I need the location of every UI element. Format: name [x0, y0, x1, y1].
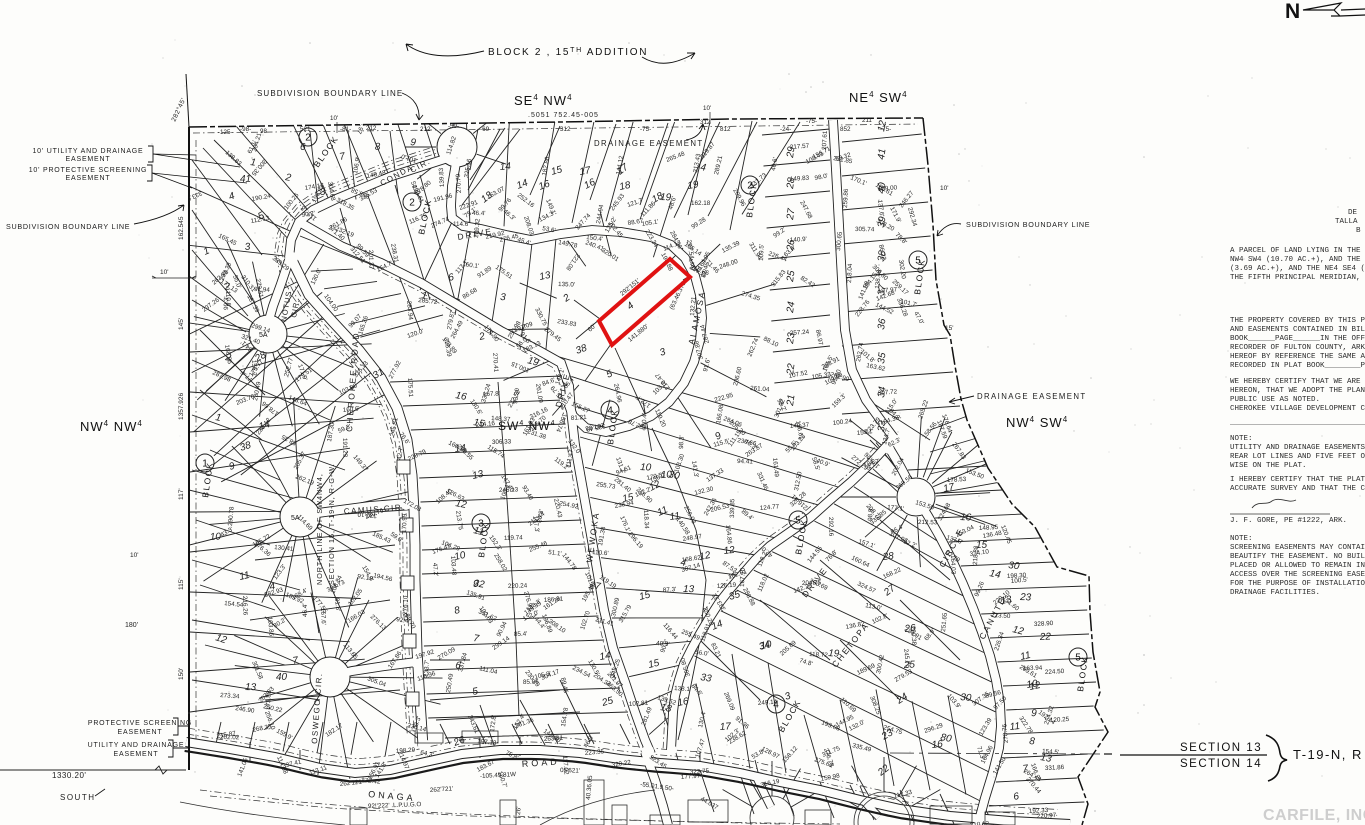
svg-text:87.3': 87.3'	[663, 586, 677, 594]
svg-text:28: 28	[881, 551, 895, 563]
svg-text:23: 23	[785, 331, 798, 345]
svg-text:98.3': 98.3'	[678, 435, 686, 449]
svg-text:201.37: 201.37	[367, 250, 374, 270]
svg-text:852: 852	[840, 126, 851, 133]
svg-text:SECTION 15, T-19-N, R-G-W.: SECTION 15, T-19-N, R-G-W.	[327, 463, 336, 585]
svg-text:NE4 SW4: NE4 SW4	[849, 90, 908, 105]
svg-text:25: 25	[903, 659, 916, 671]
svg-text:167.6': 167.6'	[319, 608, 327, 625]
svg-text:.5051 752.45-005: .5051 752.45-005	[528, 112, 599, 119]
svg-text:ACCURATE SURVEY AND THAT THE C: ACCURATE SURVEY AND THAT THE CORNER	[1230, 485, 1365, 493]
svg-text:28: 28	[785, 176, 798, 190]
svg-text:33: 33	[876, 419, 889, 432]
svg-text:119.74: 119.74	[504, 534, 524, 542]
svg-text:EASEMENT: EASEMENT	[66, 156, 111, 163]
svg-text:40: 40	[276, 672, 288, 683]
svg-text:261.04: 261.04	[750, 385, 770, 393]
svg-text:15': 15'	[945, 325, 953, 332]
svg-text:BEAUTIFY THE EASEMENT. NO BUI: BEAUTIFY THE EASEMENT. NO BUILDING	[1230, 553, 1365, 561]
svg-text:13: 13	[683, 584, 695, 595]
svg-text:150': 150'	[178, 668, 185, 680]
svg-text:PUBLIC USE AS NOTED.: PUBLIC USE AS NOTED.	[1230, 396, 1320, 404]
svg-text:202.02: 202.02	[220, 734, 240, 741]
svg-text:27: 27	[588, 580, 602, 593]
svg-text:224.50: 224.50	[1045, 668, 1065, 676]
svg-text:-59-: -59-	[448, 123, 459, 130]
svg-text:212: 212	[366, 125, 377, 132]
svg-text:312: 312	[560, 126, 571, 133]
svg-text:PROTECTIVE SCREENING: PROTECTIVE SCREENING	[88, 720, 192, 727]
svg-text:312: 312	[700, 119, 711, 126]
svg-text:SUBDIVISION BOUNDARY LINE: SUBDIVISION BOUNDARY LINE	[6, 222, 130, 231]
svg-text:WISE ON THE PLAT.: WISE ON THE PLAT.	[1230, 462, 1307, 470]
svg-text:23: 23	[1019, 592, 1032, 603]
svg-text:-69-: -69-	[480, 126, 491, 133]
svg-text:25: 25	[785, 269, 798, 283]
svg-text:-24-: -24-	[780, 126, 791, 133]
svg-text:102.81: 102.81	[629, 700, 649, 708]
svg-text:REAR LOT LINES AND FIVE FEET O: REAR LOT LINES AND FIVE FEET ON ALL	[1230, 453, 1365, 461]
svg-text:270.79: 270.79	[455, 173, 463, 193]
svg-text:162.545: 162.545	[178, 216, 185, 240]
svg-text:17: 17	[719, 721, 731, 733]
svg-text:115': 115'	[178, 578, 185, 590]
svg-text:85.4': 85.4'	[514, 631, 528, 638]
svg-text:10': 10'	[703, 105, 711, 112]
svg-text:46.4': 46.4'	[472, 210, 486, 217]
svg-text:32: 32	[473, 578, 486, 591]
svg-text:259.86: 259.86	[842, 188, 850, 208]
svg-text:CHEROKEE VILLAGE DEVELOPMENT C: CHEROKEE VILLAGE DEVELOPMENT COMPAN	[1230, 405, 1365, 413]
svg-text:DE: DE	[1348, 209, 1358, 217]
svg-text:305.74: 305.74	[855, 226, 875, 233]
svg-text:328.90: 328.90	[1034, 620, 1054, 628]
svg-text:26: 26	[903, 623, 917, 635]
svg-text:CARFILE, INC: CARFILE, INC	[1263, 807, 1365, 824]
svg-text:218.04: 218.04	[846, 263, 854, 283]
svg-text:11: 11	[669, 511, 681, 523]
svg-text:10': 10'	[160, 269, 168, 276]
svg-text:EASEMENT: EASEMENT	[114, 751, 159, 758]
svg-text:29: 29	[785, 145, 798, 159]
svg-text:NOTE:: NOTE:	[1230, 535, 1253, 543]
svg-text:DRAINAGE EASEMENT: DRAINAGE EASEMENT	[977, 392, 1087, 401]
svg-text:270.41: 270.41	[491, 353, 499, 373]
svg-text:NORTH LINE OF SW4NW4,: NORTH LINE OF SW4NW4,	[315, 473, 324, 585]
svg-text:10' PROTECTIVE SCREENING: 10' PROTECTIVE SCREENING	[29, 167, 148, 174]
svg-text:N: N	[1285, 0, 1300, 23]
svg-text:NW4 SW4 (10.70 AC.+), AND THE: NW4 SW4 (10.70 AC.+), AND THE NE4 S	[1230, 256, 1365, 264]
svg-text:10' UTILITY AND DRAINAGE: 10' UTILITY AND DRAINAGE	[32, 148, 143, 155]
svg-text:-75-: -75-	[806, 118, 817, 125]
svg-text:EASEMENT: EASEMENT	[66, 175, 111, 182]
svg-text:30: 30	[1008, 560, 1021, 572]
svg-text:BLOCK 2 , 15TH ADDITION: BLOCK 2 , 15TH ADDITION	[488, 47, 648, 58]
svg-text:A PARCEL OF LAND LYING IN THE: A PARCEL OF LAND LYING IN THE SW4 N	[1230, 247, 1365, 255]
svg-text:292.16: 292.16	[827, 517, 834, 537]
svg-text:-98-: -98-	[240, 126, 251, 133]
svg-text:24: 24	[785, 300, 798, 314]
svg-text:15: 15	[976, 540, 988, 551]
svg-text:41: 41	[240, 174, 251, 185]
svg-text:TALLA: TALLA	[1335, 218, 1358, 226]
svg-text:22: 22	[1039, 631, 1052, 643]
svg-text:220.24: 220.24	[508, 582, 528, 590]
svg-text:191.23: 191.23	[341, 438, 348, 458]
svg-text:175.51: 175.51	[406, 378, 414, 398]
svg-text:NOTE:: NOTE:	[1230, 435, 1253, 443]
svg-text:UTILITY AND DRAINAGE: UTILITY AND DRAINAGE	[88, 742, 185, 749]
svg-text:11: 11	[1009, 721, 1020, 733]
svg-text:10': 10'	[940, 185, 948, 192]
svg-text:3: 3	[320, 187, 327, 198]
svg-text:91.94: 91.94	[254, 286, 271, 294]
svg-text:339.85: 339.85	[729, 498, 736, 518]
svg-text:180': 180'	[125, 622, 138, 629]
svg-text:114.6': 114.6'	[453, 221, 470, 228]
svg-text:FOR THE PURPOSE OF INSTALLATIO: FOR THE PURPOSE OF INSTALLATION AND	[1230, 580, 1365, 588]
svg-text:94.41: 94.41	[737, 458, 753, 466]
svg-text:1357.926: 1357.926	[178, 393, 185, 420]
svg-text:812: 812	[720, 126, 731, 133]
svg-text:6: 6	[300, 142, 306, 153]
svg-text:AND EASEMENTS CONTAINED IN BIL: AND EASEMENTS CONTAINED IN BILL OF	[1230, 326, 1365, 334]
svg-text:EASEMENT: EASEMENT	[118, 729, 163, 736]
svg-text:192.33: 192.33	[1029, 807, 1049, 815]
svg-text:81.8': 81.8'	[333, 597, 341, 611]
svg-text:HEREON, THAT WE ADOPT THE PLA: HEREON, THAT WE ADOPT THE PLAN OF	[1230, 387, 1365, 395]
svg-text:170.99: 170.99	[401, 513, 409, 533]
svg-text:145': 145'	[178, 318, 185, 330]
svg-text:331.86: 331.86	[1045, 764, 1065, 772]
svg-text:173.89: 173.89	[265, 690, 273, 710]
svg-text:26: 26	[785, 238, 798, 252]
svg-text:160.4': 160.4'	[641, 413, 648, 430]
svg-text:162.18: 162.18	[691, 200, 711, 207]
svg-text:10: 10	[210, 531, 222, 543]
svg-text:39: 39	[876, 215, 889, 228]
svg-text:______________________________: _______________________________ SE	[1229, 419, 1365, 427]
svg-text:30: 30	[960, 692, 972, 704]
svg-text:212: 212	[420, 126, 431, 133]
svg-text:10': 10'	[330, 115, 338, 122]
svg-text:THE FIFTH PRINCIPAL MERIDIAN,: THE FIFTH PRINCIPAL MERIDIAN, FULTO	[1230, 274, 1365, 282]
svg-text:16: 16	[960, 512, 972, 524]
svg-text:4: 4	[773, 700, 779, 711]
svg-text:3: 3	[500, 292, 507, 303]
svg-text:211: 211	[862, 117, 872, 124]
svg-text:139.83: 139.83	[438, 167, 446, 187]
svg-text:I HEREBY CERTIFY THAT THE PLAT: I HEREBY CERTIFY THAT THE PLAT SHOW	[1230, 476, 1365, 484]
svg-text:22: 22	[785, 362, 798, 376]
svg-text:10': 10'	[130, 552, 138, 559]
svg-text:PLACED OR ALLOWED TO REMAIN IN: PLACED OR ALLOWED TO REMAIN IN THE	[1230, 562, 1365, 570]
svg-text:47.2': 47.2'	[431, 563, 439, 577]
svg-text:BOOK______PAGE______IN THE OFF: BOOK______PAGE______IN THE OFFICE	[1230, 335, 1365, 343]
svg-text:SW4 NW4: SW4 NW4	[498, 419, 555, 433]
svg-text:118.34: 118.34	[642, 510, 650, 530]
svg-text:27: 27	[785, 207, 798, 221]
svg-text:186.81: 186.81	[544, 596, 564, 604]
svg-text:NW4 SW4: NW4 SW4	[1006, 415, 1068, 430]
svg-text:14: 14	[499, 161, 511, 173]
svg-text:100.5': 100.5'	[1011, 577, 1029, 585]
svg-text:21: 21	[785, 394, 798, 408]
svg-text:273.34: 273.34	[220, 692, 240, 700]
svg-text:34: 34	[876, 385, 889, 398]
svg-text:138.1': 138.1'	[674, 685, 691, 693]
svg-text:SOUTH: SOUTH	[60, 793, 96, 802]
svg-text:36: 36	[876, 317, 889, 330]
svg-text:SECTION 13: SECTION 13	[1180, 742, 1262, 754]
svg-text:37: 37	[876, 283, 889, 296]
svg-text:26': 26'	[515, 806, 523, 815]
svg-text:HEREOF BY REFERENCE THE SAME: HEREOF BY REFERENCE THE SAME AS TH	[1230, 353, 1365, 361]
svg-text:-81-: -81-	[340, 126, 351, 133]
svg-text:306.33: 306.33	[492, 438, 512, 446]
svg-text:-125-: -125-	[218, 129, 232, 136]
svg-text:SCREENING EASEMENTS MAY CONTAI: SCREENING EASEMENTS MAY CONTAIN TRE	[1230, 544, 1365, 552]
svg-text:SECTION 14: SECTION 14	[1180, 758, 1262, 770]
svg-text:12: 12	[723, 545, 736, 557]
svg-text:126.19: 126.19	[717, 582, 737, 590]
svg-text:35: 35	[876, 351, 889, 364]
svg-text:33: 33	[700, 672, 713, 685]
svg-text:2: 2	[305, 133, 311, 144]
svg-text:RECORDED IN PLAT BOOK________P: RECORDED IN PLAT BOOK________PAGE__	[1230, 362, 1365, 370]
svg-text:5A: 5A	[259, 332, 268, 339]
svg-text:177.97: 177.97	[681, 773, 701, 781]
svg-text:SUBDIVISION BOUNDARY LINE: SUBDIVISION BOUNDARY LINE	[966, 220, 1090, 229]
svg-text:(3.69 AC.+), AND THE NE4 SE4 (: (3.69 AC.+), AND THE NE4 SE4 (7.93	[1230, 265, 1365, 273]
svg-text:2: 2	[409, 198, 415, 209]
svg-text:117': 117'	[178, 488, 185, 500]
svg-text:UTILITY AND DRAINAGE EASEMENTS: UTILITY AND DRAINAGE EASEMENTS ARE	[1230, 444, 1365, 452]
svg-text:98: 98	[260, 128, 267, 135]
svg-text:RECORDER OF FULTON COUNTY, ARK: RECORDER OF FULTON COUNTY, ARKANSAS	[1230, 344, 1365, 352]
svg-text:B: B	[1356, 227, 1361, 235]
svg-text:40: 40	[876, 181, 889, 194]
svg-text:T-19-N, R: T-19-N, R	[1293, 747, 1363, 762]
svg-text:WE HEREBY CERTIFY THAT WE ARE: WE HEREBY CERTIFY THAT WE ARE THE	[1230, 378, 1365, 386]
svg-text:DRAINAGE EASEMENT: DRAINAGE EASEMENT	[594, 139, 704, 148]
svg-text:10: 10	[640, 462, 652, 474]
svg-text:19: 19	[660, 192, 672, 203]
svg-text:1330.20': 1330.20'	[52, 771, 86, 780]
svg-text:5A: 5A	[291, 515, 300, 522]
svg-text:THE PROPERTY COVERED BY THIS P: THE PROPERTY COVERED BY THIS PLAT I	[1230, 317, 1365, 325]
svg-text:ACCESS OVER THE SCREENING EAS: ACCESS OVER THE SCREENING EASEMENT	[1230, 571, 1365, 579]
svg-text:135.0': 135.0'	[558, 281, 575, 289]
svg-text:9: 9	[1031, 708, 1038, 719]
svg-text:13: 13	[245, 682, 257, 693]
svg-text:SUBDIVISION BOUNDARY LINE: SUBDIVISION BOUNDARY LINE	[257, 89, 403, 98]
svg-text:81.21: 81.21	[571, 414, 588, 422]
svg-text:NW4 NW4: NW4 NW4	[80, 419, 143, 434]
svg-text:J. F. GORE, PE #1222, ARK.: J. F. GORE, PE #1222, ARK.	[1230, 517, 1347, 525]
svg-text:-75-: -75-	[640, 126, 651, 133]
svg-text:110.6': 110.6'	[224, 291, 232, 308]
svg-text:14: 14	[599, 650, 612, 663]
svg-text:14: 14	[454, 443, 467, 455]
svg-text:16: 16	[931, 739, 944, 751]
svg-text:DRAINAGE FACILITIES.: DRAINAGE FACILITIES.	[1230, 589, 1320, 597]
svg-text:SE4 NW4: SE4 NW4	[514, 93, 573, 108]
svg-text:210.12: 210.12	[970, 820, 990, 825]
svg-text:46.4': 46.4'	[302, 604, 309, 617]
svg-text:41: 41	[876, 148, 888, 161]
svg-text:212.53: 212.53	[918, 519, 938, 526]
svg-text:38: 38	[876, 249, 889, 262]
svg-text:118.72: 118.72	[809, 651, 829, 659]
